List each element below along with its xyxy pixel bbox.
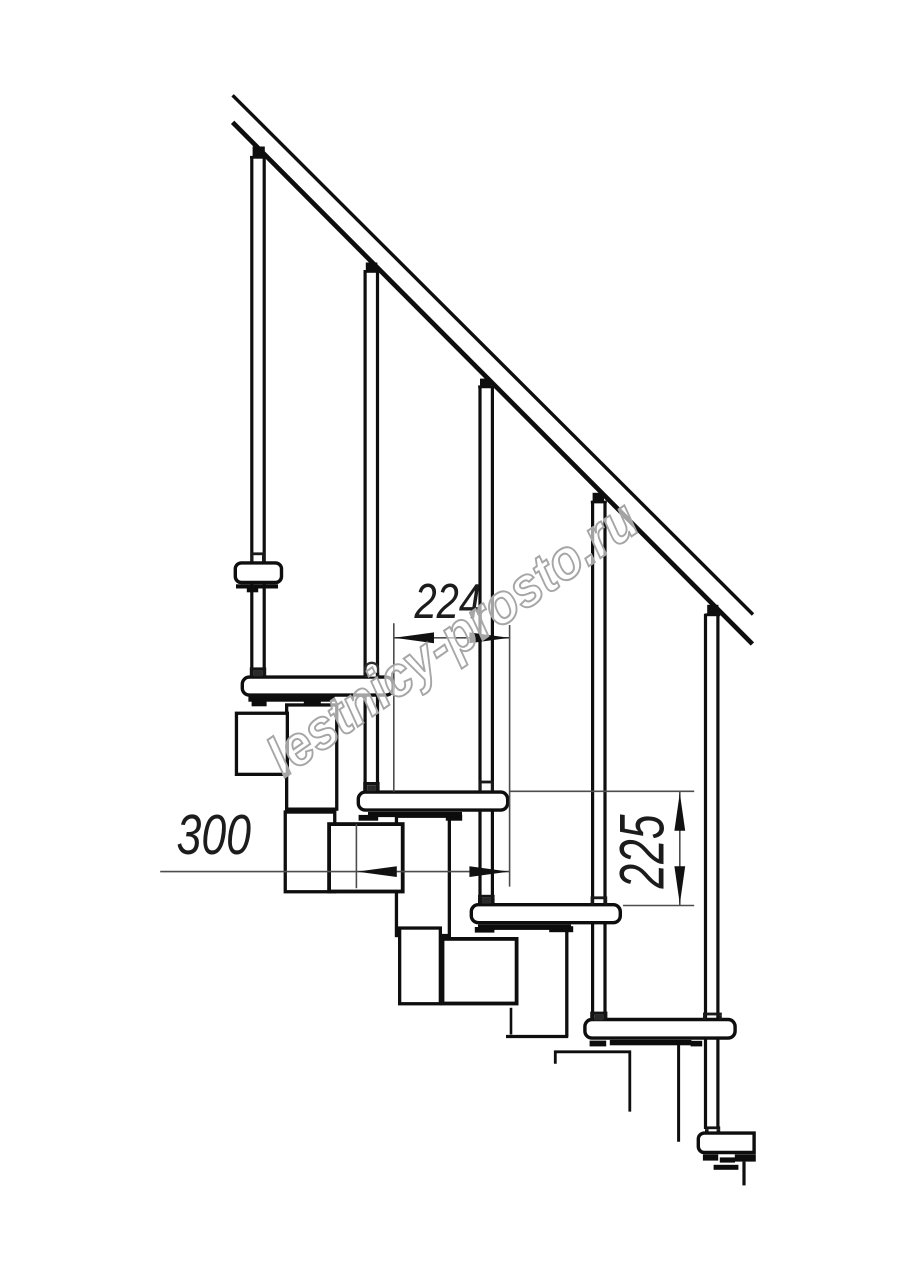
svg-text:300: 300 <box>177 803 252 867</box>
svg-text:225: 225 <box>608 814 678 889</box>
